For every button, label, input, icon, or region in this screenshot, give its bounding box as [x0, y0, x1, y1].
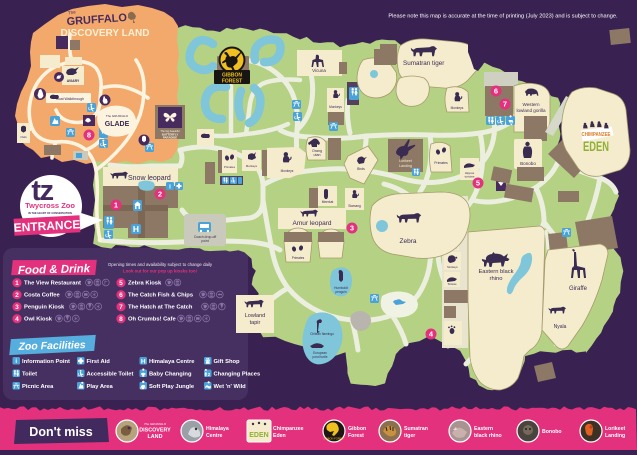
svg-text:Lowland: Lowland: [245, 313, 266, 319]
svg-text:Primates: Primates: [224, 165, 236, 169]
svg-text:Goat Walkthrough: Goat Walkthrough: [56, 97, 84, 101]
svg-text:GIBBON FOREST: GIBBON FOREST: [323, 437, 345, 441]
svg-text:Landing: Landing: [399, 164, 412, 168]
svg-text:Chilean flamingo: Chilean flamingo: [310, 332, 334, 336]
svg-text:Owl Kiosk: Owl Kiosk: [24, 317, 53, 323]
svg-text:Eastern: Eastern: [474, 426, 493, 432]
svg-text:Birds: Birds: [357, 167, 365, 171]
svg-text:Giraffe: Giraffe: [569, 286, 588, 292]
svg-text:Chimpanzee: Chimpanzee: [273, 426, 304, 432]
svg-text:1: 1: [114, 201, 118, 210]
svg-text:Zebra Kiosk: Zebra Kiosk: [128, 281, 162, 287]
svg-text:6: 6: [494, 87, 498, 96]
svg-text:IN THE HEART OF CONSERVATION: IN THE HEART OF CONSERVATION: [28, 211, 72, 215]
svg-text:CHIMPANZEE: CHIMPANZEE: [582, 132, 612, 138]
svg-text:Siamang: Siamang: [348, 204, 361, 208]
svg-text:7: 7: [119, 304, 123, 311]
svg-text:First Aid: First Aid: [87, 359, 111, 365]
svg-text:DISCOVERY LAND: DISCOVERY LAND: [61, 28, 150, 39]
svg-text:utan: utan: [314, 153, 321, 157]
svg-text:Forest: Forest: [348, 433, 364, 439]
svg-text:H: H: [133, 224, 139, 234]
svg-text:Zoo Facilities: Zoo Facilities: [17, 339, 86, 353]
svg-text:Accessible Toilet: Accessible Toilet: [87, 372, 134, 378]
svg-text:2: 2: [158, 190, 162, 199]
svg-text:Bonobo: Bonobo: [542, 429, 562, 435]
svg-text:Sumatran tiger: Sumatran tiger: [403, 60, 444, 67]
svg-text:Penguin Kiosk: Penguin Kiosk: [24, 305, 65, 311]
svg-text:Picnic Area: Picnic Area: [22, 384, 54, 390]
svg-text:The GRUFFALO: The GRUFFALO: [106, 114, 129, 118]
svg-text:Opening times and availability: Opening times and availability subject t…: [108, 262, 213, 267]
svg-text:Please note this map is accura: Please note this map is accurate at the …: [388, 14, 618, 20]
svg-text:Changing Places: Changing Places: [214, 372, 261, 378]
svg-text:Eden: Eden: [273, 433, 286, 439]
svg-text:3: 3: [350, 224, 354, 233]
svg-text:4: 4: [15, 316, 19, 323]
svg-text:6: 6: [119, 292, 123, 299]
svg-text:Himalaya Centre: Himalaya Centre: [149, 359, 195, 365]
svg-text:Twycross Zoo: Twycross Zoo: [25, 201, 75, 210]
svg-text:GLADE: GLADE: [105, 121, 130, 128]
svg-text:Wet 'n' Wild: Wet 'n' Wild: [214, 384, 247, 390]
svg-text:The Hatch at The Catch: The Hatch at The Catch: [128, 305, 193, 311]
svg-text:Costa Coffee: Costa Coffee: [24, 293, 61, 299]
svg-text:EDEN: EDEN: [583, 139, 609, 154]
svg-text:lowland gorilla: lowland gorilla: [516, 108, 546, 113]
svg-text:Soft Play Jungle: Soft Play Jungle: [149, 384, 195, 390]
svg-text:Monkeys: Monkeys: [451, 106, 464, 110]
svg-text:7: 7: [503, 100, 507, 109]
svg-text:Food & Drink: Food & Drink: [18, 263, 91, 277]
svg-text:Eastern black: Eastern black: [478, 269, 513, 275]
svg-text:point: point: [201, 239, 208, 243]
svg-text:Landing: Landing: [605, 433, 625, 439]
svg-text:Gift Shop: Gift Shop: [214, 359, 241, 365]
svg-text:H: H: [141, 358, 146, 365]
svg-text:1: 1: [15, 280, 19, 287]
svg-text:Centre: Centre: [206, 433, 223, 439]
svg-text:Sumatran: Sumatran: [404, 426, 428, 432]
svg-text:Monkeys: Monkeys: [447, 265, 458, 269]
svg-text:Meerkat: Meerkat: [322, 200, 334, 204]
svg-text:Oh Crumbs! Cafe: Oh Crumbs! Cafe: [128, 317, 176, 323]
svg-text:PARADISE: PARADISE: [163, 136, 177, 140]
svg-text:Nyala: Nyala: [554, 324, 567, 330]
svg-text:Monkeys: Monkeys: [281, 169, 294, 173]
svg-text:Don't miss: Don't miss: [29, 425, 92, 439]
svg-text:5: 5: [119, 280, 123, 287]
svg-text:The GRUFFALO: The GRUFFALO: [144, 422, 167, 426]
svg-text:Play Area: Play Area: [87, 384, 114, 390]
svg-text:5: 5: [476, 179, 480, 188]
svg-text:The View Restaurant: The View Restaurant: [24, 281, 81, 287]
svg-text:tapir: tapir: [250, 320, 261, 326]
svg-text:Himalaya: Himalaya: [206, 426, 229, 432]
svg-text:Bonobo: Bonobo: [520, 161, 536, 166]
svg-text:Information Point: Information Point: [22, 359, 70, 365]
svg-text:Look out for our pop up kiosks: Look out for our pop up kiosks too!: [123, 269, 198, 274]
svg-text:Toilet: Toilet: [22, 372, 37, 378]
svg-text:FOREST: FOREST: [222, 79, 242, 85]
svg-text:Lorikeet: Lorikeet: [605, 426, 625, 432]
svg-text:Lorikeet: Lorikeet: [399, 159, 412, 163]
svg-text:8: 8: [119, 316, 123, 323]
svg-text:pond turtle: pond turtle: [312, 355, 327, 359]
svg-text:tortoise: tortoise: [465, 174, 475, 178]
svg-text:Primates: Primates: [434, 161, 448, 165]
svg-text:The Catch Fish & Chips: The Catch Fish & Chips: [128, 293, 193, 299]
svg-text:Owls: Owls: [20, 135, 27, 139]
svg-text:Primates: Primates: [292, 256, 305, 260]
svg-text:black rhino: black rhino: [474, 433, 502, 439]
svg-text:penguin: penguin: [335, 290, 347, 294]
svg-text:DISCOVERY: DISCOVERY: [139, 428, 171, 434]
svg-text:Amur leopard: Amur leopard: [292, 220, 331, 227]
svg-text:2: 2: [15, 292, 19, 299]
svg-text:Baby Changing: Baby Changing: [149, 372, 192, 378]
svg-text:Monkeys: Monkeys: [246, 164, 258, 168]
svg-text:rhino: rhino: [490, 276, 503, 282]
svg-text:LAND: LAND: [148, 434, 163, 440]
svg-text:3: 3: [15, 304, 19, 311]
svg-text:EDEN: EDEN: [249, 432, 268, 439]
svg-text:Gibbon: Gibbon: [348, 426, 366, 432]
svg-text:Western: Western: [522, 102, 539, 107]
svg-text:Monkeys: Monkeys: [329, 105, 342, 109]
svg-text:8: 8: [87, 131, 91, 140]
svg-text:tiger: tiger: [404, 433, 415, 439]
svg-text:Tortoise: Tortoise: [447, 282, 457, 286]
svg-text:Zebra: Zebra: [400, 238, 417, 245]
svg-text:Vicuna: Vicuna: [312, 68, 326, 73]
svg-text:AVIARY: AVIARY: [67, 79, 80, 83]
